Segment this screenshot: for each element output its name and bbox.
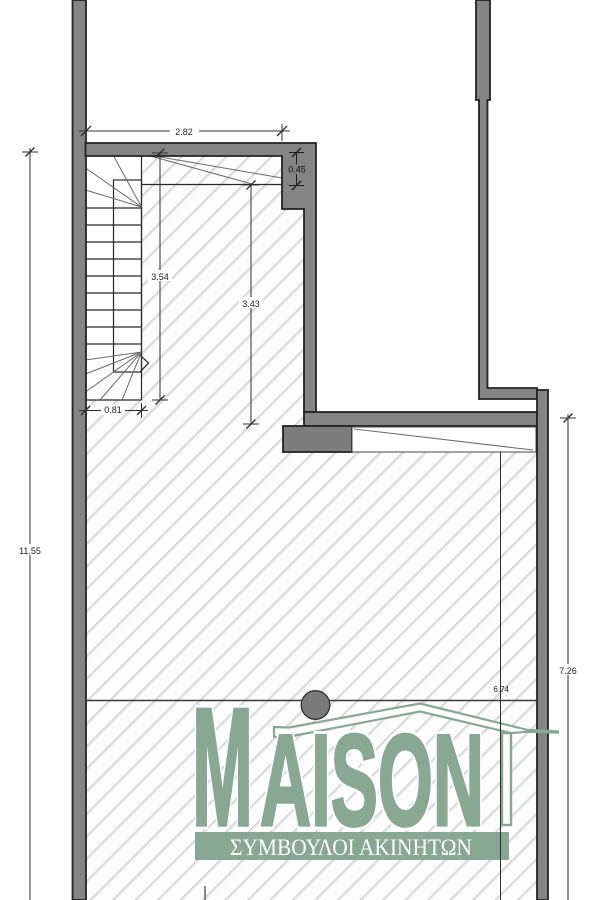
svg-text:6.74: 6.74 — [493, 685, 509, 694]
svg-text:2.82: 2.82 — [175, 127, 193, 137]
svg-text:11.55: 11.55 — [19, 546, 41, 556]
svg-text:3.43: 3.43 — [242, 299, 260, 309]
svg-text:7.26: 7.26 — [559, 666, 577, 676]
svg-text:0.81: 0.81 — [104, 405, 122, 415]
svg-text:3.54: 3.54 — [151, 272, 169, 282]
svg-text:AISON: AISON — [260, 707, 484, 853]
svg-text:ΣΥΜΒΟΥΛΟΙ ΑΚΙΝΗΤΩΝ: ΣΥΜΒΟΥΛΟΙ ΑΚΙΝΗΤΩΝ — [230, 835, 472, 860]
svg-text:0.45: 0.45 — [288, 165, 306, 175]
